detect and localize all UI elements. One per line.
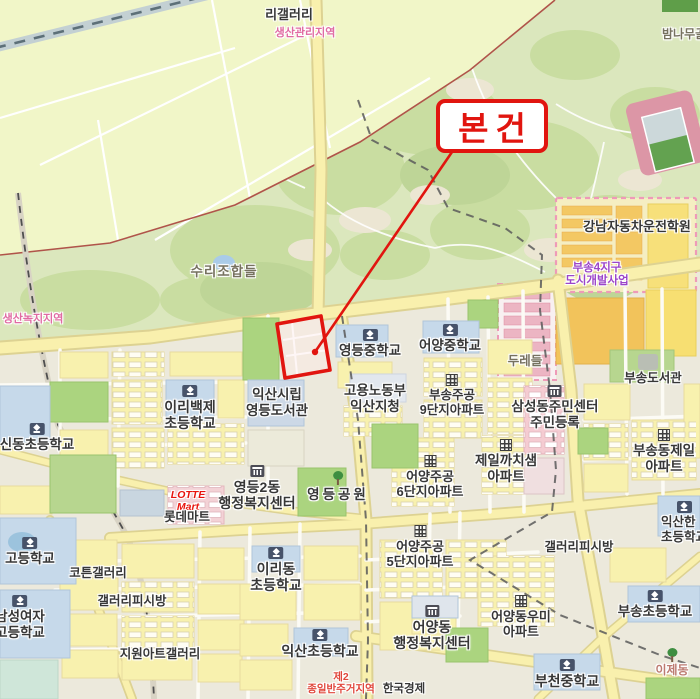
subject-label: 본건 xyxy=(458,102,533,150)
map-base-layer xyxy=(0,0,700,699)
subject-annotation-box: 본건 xyxy=(436,99,548,153)
pond xyxy=(213,255,235,271)
map[interactable]: 리갤러리생산관리지역밤나무골수리조합들생산녹지지역강남자동차운전학원부송4지구도… xyxy=(0,0,700,699)
subject-parcel-block xyxy=(277,316,330,378)
small-pitch xyxy=(662,0,698,12)
